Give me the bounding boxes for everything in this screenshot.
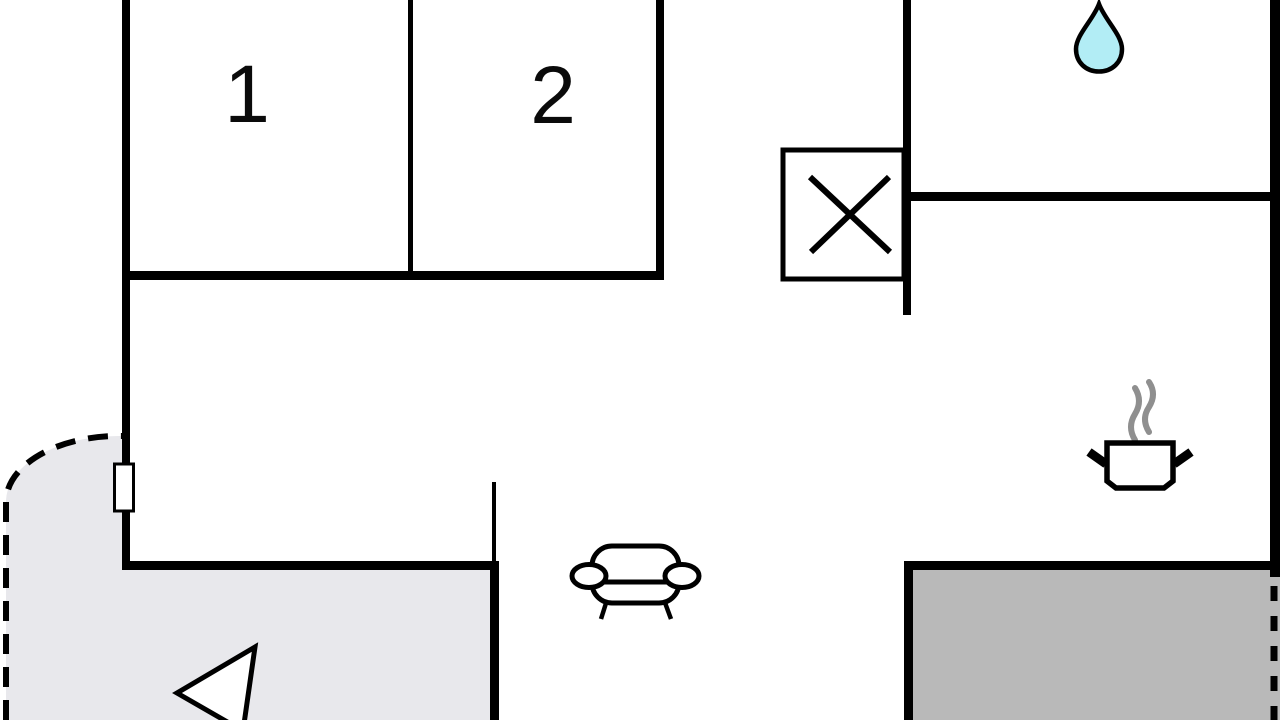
window-marker — [115, 464, 134, 511]
wall-left-lower — [122, 510, 130, 565]
steam-wisp-left — [1131, 388, 1139, 440]
room-1-label: 1 — [224, 49, 270, 140]
wall-left-upper — [122, 0, 130, 465]
steam-wisp-right — [1145, 382, 1153, 432]
wall-bedroom2-right — [656, 0, 664, 280]
wall-patio-left — [904, 561, 913, 720]
patio-area — [908, 565, 1280, 720]
wall-terrace-right — [490, 561, 499, 720]
sofa-armrest-right — [665, 565, 699, 588]
wall-stub-living — [492, 482, 496, 562]
water-drop-icon — [1076, 4, 1122, 72]
pot-handle-left — [1089, 452, 1106, 464]
steaming-pot-icon — [1089, 382, 1191, 488]
shower-box — [783, 150, 904, 279]
patio-floor — [908, 565, 1280, 720]
wall-bedrooms-bottom — [122, 271, 664, 280]
sofa-icon — [572, 546, 699, 619]
wall-outer-right — [1270, 0, 1280, 577]
wall-terrace-top — [122, 561, 498, 570]
sofa-armrest-left — [572, 565, 606, 588]
wall-bathroom-bottom — [903, 192, 1280, 201]
room-2-label: 2 — [530, 50, 576, 141]
wall-patio-top — [904, 561, 1280, 570]
floor-plan: 1 2 — [0, 0, 1280, 720]
floor-plan-canvas: 1 2 — [0, 0, 1280, 720]
pot-handle-right — [1174, 452, 1191, 464]
pot-body — [1107, 443, 1173, 488]
wall-bedroom-divider — [408, 0, 413, 276]
shower-crossed-square-icon — [783, 150, 904, 279]
